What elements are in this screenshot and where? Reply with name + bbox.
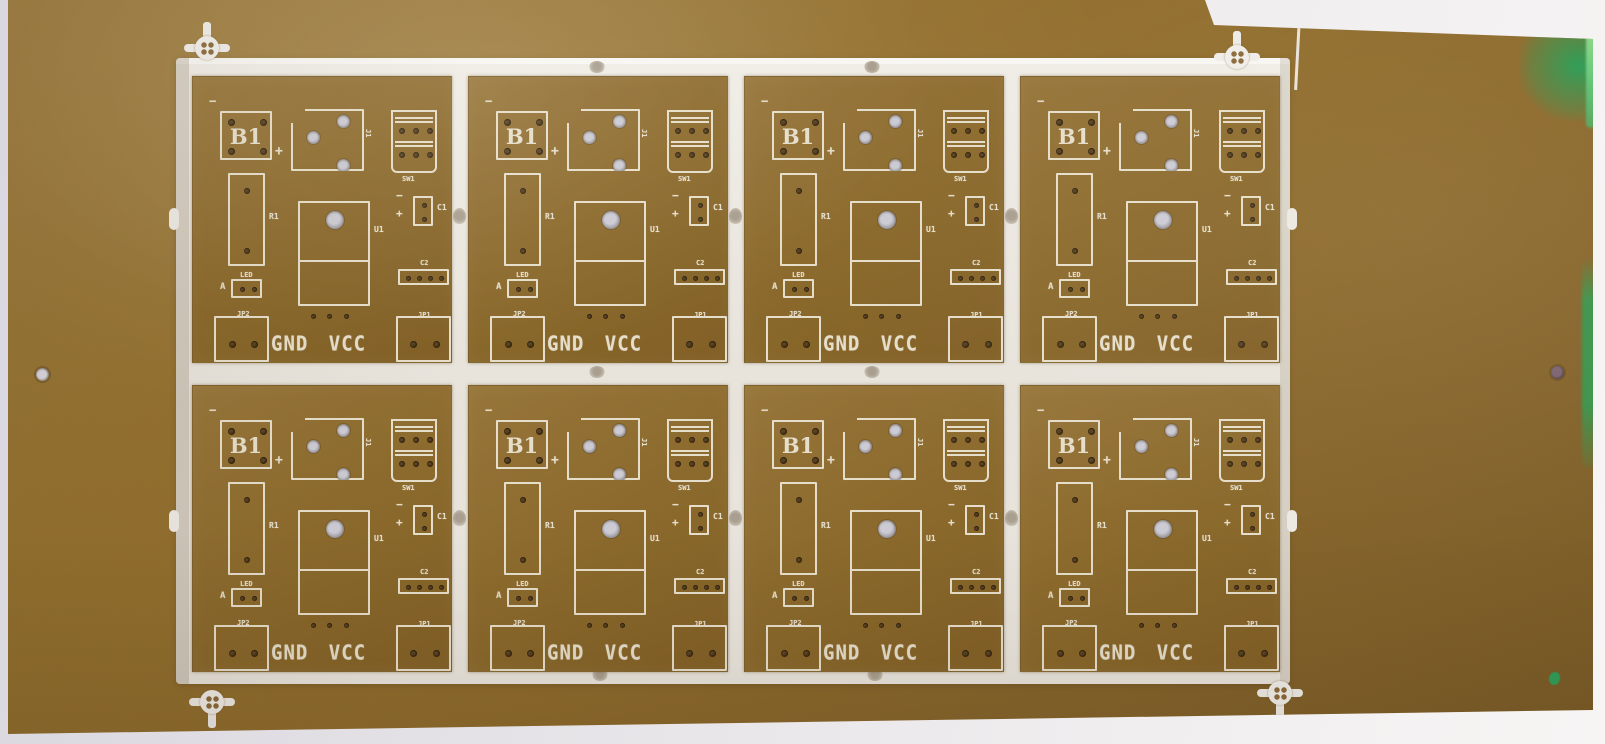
cap1-refdes: C1 [989,513,999,521]
battery-minus-mark: − [761,95,768,107]
silk-line [671,117,709,119]
battery-refdes: B1 [1050,433,1098,458]
power-jack-footprint [567,109,640,171]
drill-hole [399,152,405,158]
drill-hole [337,115,350,128]
mounting-hole [1154,211,1172,229]
jumper1-footprint [396,316,451,362]
ic-refdes: U1 [926,535,936,543]
drill-hole [796,188,802,194]
fiducial-core [195,36,219,60]
resistor-refdes: R1 [821,213,831,221]
cap1-refdes: C1 [713,513,723,521]
mouse-bite-tab [589,366,605,378]
silk-line [1128,260,1196,262]
drill-hole [427,128,433,134]
board-array: − B1 + J1 SW1 [176,58,1290,684]
capacitor2-footprint [674,269,725,285]
drill-hole [1165,159,1178,172]
silk-line [1223,454,1261,456]
cap1-plus-mark: + [672,517,679,528]
drill-hole [1080,596,1085,601]
drill-hole [244,188,250,194]
resistor-refdes: R1 [269,213,279,221]
ic-refdes: U1 [1202,535,1212,543]
battery-refdes: B1 [1050,124,1098,149]
battery-plus-mark: + [827,145,835,158]
resistor-refdes: R1 [1097,522,1107,530]
resistor-footprint [1056,482,1093,575]
silk-line [1223,145,1261,147]
drill-hole [413,152,419,158]
power-jack-footprint [291,109,364,171]
drill-hole [812,457,819,464]
drill-hole [344,314,349,319]
drill-hole [951,152,957,158]
capacitor1-footprint [413,196,433,226]
resistor-refdes: R1 [1097,213,1107,221]
drill-hole [991,585,996,590]
led-refdes: LED [792,272,805,279]
drill-hole [1088,457,1095,464]
tooling-hole [36,368,49,381]
drill-hole [337,159,350,172]
green-paint-speck [1582,258,1597,468]
drill-hole [974,217,979,222]
drill-hole [863,623,868,628]
drill-hole [889,468,902,481]
drill-hole [1261,650,1268,657]
drill-hole [251,341,258,348]
drill-hole [527,650,534,657]
cap1-minus-mark: − [948,190,955,201]
cap1-refdes: C1 [1265,513,1275,521]
silk-line [947,450,985,452]
drill-hole [689,128,695,134]
pcb-board: − B1 + J1 SW1 [468,76,728,363]
led-refdes: LED [240,581,253,588]
drill-hole [516,287,521,292]
drill-hole [240,596,245,601]
cap1-plus-mark: + [672,208,679,219]
cap2-refdes: C2 [972,260,980,267]
drill-hole [896,623,901,628]
drill-hole [252,287,257,292]
power-rail-text: GND VCC [1099,643,1194,664]
drill-hole [980,276,985,281]
cap1-plus-mark: + [396,517,403,528]
silk-line [852,260,920,262]
cap1-plus-mark: + [1224,517,1231,528]
cap1-refdes: C1 [713,204,723,212]
switch-refdes: SW1 [678,176,691,183]
drill-hole [803,341,810,348]
cap2-refdes: C2 [1248,569,1256,576]
battery-plus-mark: + [551,454,559,467]
drill-hole [439,276,444,281]
drill-hole [689,437,695,443]
led-footprint [783,588,814,607]
capacitor1-footprint [1241,196,1261,226]
drill-hole [413,461,419,467]
silk-line [947,430,985,432]
mounting-hole [326,520,344,538]
power-rail-text: GND VCC [271,334,366,355]
power-jack-refdes: J1 [916,129,923,137]
mounting-hole [326,211,344,229]
cap1-minus-mark: − [396,499,403,510]
silk-line [671,121,709,123]
capacitor1-footprint [413,505,433,535]
drill-hole [965,152,971,158]
drill-hole [958,585,963,590]
drill-hole [962,341,969,348]
drill-hole [951,128,957,134]
led-anode-mark: A [772,592,777,601]
power-jack-footprint [567,418,640,480]
jumper2-footprint [1042,625,1097,671]
silk-line [576,260,644,262]
power-rail-text: GND VCC [823,643,918,664]
jumper2-footprint [766,625,821,671]
drill-hole [1079,341,1086,348]
jumper1-footprint [672,316,727,362]
drill-hole [804,287,809,292]
silk-line [947,426,985,428]
ic-footprint [850,201,922,306]
battery-plus-mark: + [1103,454,1111,467]
silk-line [1223,121,1261,123]
drill-hole [1068,287,1073,292]
drill-hole [520,557,526,563]
jumper1-footprint [1224,316,1279,362]
led-refdes: LED [1068,272,1081,279]
led-footprint [1059,588,1090,607]
drill-hole [1088,148,1095,155]
drill-hole [796,497,802,503]
drill-hole [781,341,788,348]
drill-hole [1241,128,1247,134]
battery-minus-mark: − [209,404,216,416]
cap1-refdes: C1 [437,204,447,212]
drill-hole [327,314,332,319]
drill-hole [863,314,868,319]
battery-footprint: B1 [220,420,272,469]
battery-footprint: B1 [220,111,272,160]
mouse-bite-tab [453,208,466,225]
drill-hole [536,457,543,464]
mouse-bite-tab [729,510,742,527]
power-jack-refdes: J1 [364,129,371,137]
drill-hole [803,650,810,657]
drill-hole [422,203,427,208]
drill-hole [879,623,884,628]
drill-hole [1245,276,1250,281]
silk-line [1128,569,1196,571]
drill-hole [427,437,433,443]
power-rail-text: GND VCC [271,643,366,664]
drill-hole [428,276,433,281]
ic-refdes: U1 [374,226,384,234]
capacitor1-footprint [965,196,985,226]
power-jack-refdes: J1 [1192,129,1199,137]
switch-footprint [391,419,437,482]
battery-refdes: B1 [222,433,270,458]
drill-hole [1072,557,1078,563]
capacitor2-footprint [398,269,449,285]
drill-hole [520,188,526,194]
switch-footprint [391,110,437,173]
led-refdes: LED [1068,581,1081,588]
battery-minus-mark: − [761,404,768,416]
led-footprint [231,588,262,607]
drill-hole [965,128,971,134]
drill-hole [879,314,884,319]
drill-hole [1155,623,1160,628]
switch-refdes: SW1 [402,176,415,183]
drill-hole [427,152,433,158]
ic-refdes: U1 [1202,226,1212,234]
silk-line [1223,450,1261,452]
drill-hole [693,276,698,281]
jumper1-footprint [948,625,1003,671]
switch-refdes: SW1 [1230,485,1243,492]
drill-hole [583,440,596,453]
drill-hole [1068,596,1073,601]
drill-hole [675,128,681,134]
power-rail-text: GND VCC [547,334,642,355]
battery-footprint: B1 [772,420,824,469]
drill-hole [422,512,427,517]
drill-hole [965,437,971,443]
led-refdes: LED [516,272,529,279]
drill-hole [427,461,433,467]
drill-hole [433,341,440,348]
drill-hole [260,457,267,464]
drill-hole [516,596,521,601]
cap1-minus-mark: − [396,190,403,201]
cap2-refdes: C2 [420,260,428,267]
switch-footprint [943,419,989,482]
battery-minus-mark: − [1037,95,1044,107]
mounting-hole [878,211,896,229]
battery-plus-mark: + [275,145,283,158]
jumper2-footprint [214,316,269,362]
score-line [1294,18,1301,90]
drill-hole [229,650,236,657]
drill-hole [965,461,971,467]
ic-footprint [1126,201,1198,306]
fiducial-mark [189,679,235,725]
drill-hole [433,650,440,657]
power-jack-refdes: J1 [1192,438,1199,446]
drill-hole [613,468,626,481]
drill-hole [889,159,902,172]
drill-hole [682,585,687,590]
resistor-refdes: R1 [821,522,831,530]
drill-hole [1072,248,1078,254]
photo-scene: − B1 + J1 SW1 [0,0,1605,744]
drill-hole [698,512,703,517]
drill-hole [1072,188,1078,194]
drill-hole [1172,623,1177,628]
battery-minus-mark: − [1037,404,1044,416]
drill-hole [889,115,902,128]
mounting-hole [878,520,896,538]
drill-hole [1245,585,1250,590]
drill-hole [889,424,902,437]
cap1-plus-mark: + [948,517,955,528]
cap1-minus-mark: − [1224,190,1231,201]
silk-line [947,121,985,123]
drill-hole [698,203,703,208]
drill-hole [1165,115,1178,128]
switch-footprint [1219,110,1265,173]
silk-line [852,569,920,571]
led-anode-mark: A [1048,283,1053,292]
silk-line [671,145,709,147]
resistor-refdes: R1 [269,522,279,530]
cap1-refdes: C1 [989,204,999,212]
ic-footprint [574,201,646,306]
led-anode-mark: A [496,592,501,601]
power-jack-refdes: J1 [640,438,647,446]
switch-refdes: SW1 [954,485,967,492]
drill-hole [974,512,979,517]
drill-hole [1079,650,1086,657]
switch-footprint [667,419,713,482]
drill-hole [252,596,257,601]
edge-notch [1287,208,1297,230]
battery-refdes: B1 [498,124,546,149]
resistor-footprint [228,173,265,266]
drill-hole [1080,287,1085,292]
drill-hole [1255,461,1261,467]
drill-hole [1261,341,1268,348]
drill-hole [399,437,405,443]
drill-hole [1267,276,1272,281]
jumper1-footprint [396,625,451,671]
drill-hole [244,557,250,563]
silk-line [576,569,644,571]
pcb-board: − B1 + J1 SW1 [1020,76,1280,363]
drill-hole [1255,437,1261,443]
drill-hole [244,497,250,503]
drill-hole [859,440,872,453]
cap1-plus-mark: + [948,208,955,219]
silk-line [395,450,433,452]
drill-hole [399,461,405,467]
drill-hole [399,128,405,134]
drill-hole [406,276,411,281]
drill-hole [528,596,533,601]
drill-hole [792,596,797,601]
silk-line [1223,426,1261,428]
pcb-board: − B1 + J1 SW1 [1020,385,1280,672]
green-paint-speck [1549,672,1560,685]
battery-plus-mark: + [551,145,559,158]
drill-hole [417,585,422,590]
fiducial-mark [184,25,230,71]
drill-hole [693,585,698,590]
pcb-board: − B1 + J1 SW1 [192,76,452,363]
cap2-refdes: C2 [696,569,704,576]
drill-hole [307,440,320,453]
drill-hole [1135,131,1148,144]
drill-hole [709,341,716,348]
fiducial-core [200,690,224,714]
drill-hole [991,276,996,281]
drill-hole [410,341,417,348]
drill-hole [613,159,626,172]
drill-hole [686,650,693,657]
jumper2-footprint [214,625,269,671]
drill-hole [675,152,681,158]
capacitor2-footprint [1226,269,1277,285]
silk-line [395,145,433,147]
ic-footprint [850,510,922,615]
power-jack-footprint [291,418,364,480]
ic-footprint [574,510,646,615]
ic-refdes: U1 [926,226,936,234]
edge-notch [169,208,179,230]
drill-hole [1057,650,1064,657]
drill-hole [1139,314,1144,319]
drill-hole [417,276,422,281]
drill-hole [951,437,957,443]
drill-hole [1227,461,1233,467]
drill-hole [251,650,258,657]
capacitor2-footprint [1226,578,1277,594]
resistor-footprint [780,482,817,575]
power-jack-footprint [843,109,916,171]
power-jack-refdes: J1 [640,129,647,137]
resistor-footprint [1056,173,1093,266]
power-jack-footprint [1119,418,1192,480]
drill-hole [422,217,427,222]
drill-hole [1250,217,1255,222]
led-footprint [1059,279,1090,298]
drill-hole [704,276,709,281]
pcb-board: − B1 + J1 SW1 [468,385,728,672]
drill-hole [505,650,512,657]
drill-hole [344,623,349,628]
drill-hole [1165,468,1178,481]
silk-line [1223,141,1261,143]
drill-hole [439,585,444,590]
drill-hole [979,437,985,443]
drill-hole [951,461,957,467]
drill-hole [792,287,797,292]
cap1-refdes: C1 [1265,204,1275,212]
drill-hole [1056,148,1063,155]
drill-hole [520,248,526,254]
drill-hole [980,585,985,590]
drill-hole [413,437,419,443]
drill-hole [587,314,592,319]
drill-hole [689,461,695,467]
led-anode-mark: A [220,283,225,292]
silk-line [395,454,433,456]
silk-line [395,121,433,123]
power-rail-text: GND VCC [823,334,918,355]
capacitor1-footprint [689,196,709,226]
jumper1-footprint [1224,625,1279,671]
drill-hole [528,287,533,292]
drill-hole [428,585,433,590]
cap1-minus-mark: − [948,499,955,510]
silk-line [671,430,709,432]
